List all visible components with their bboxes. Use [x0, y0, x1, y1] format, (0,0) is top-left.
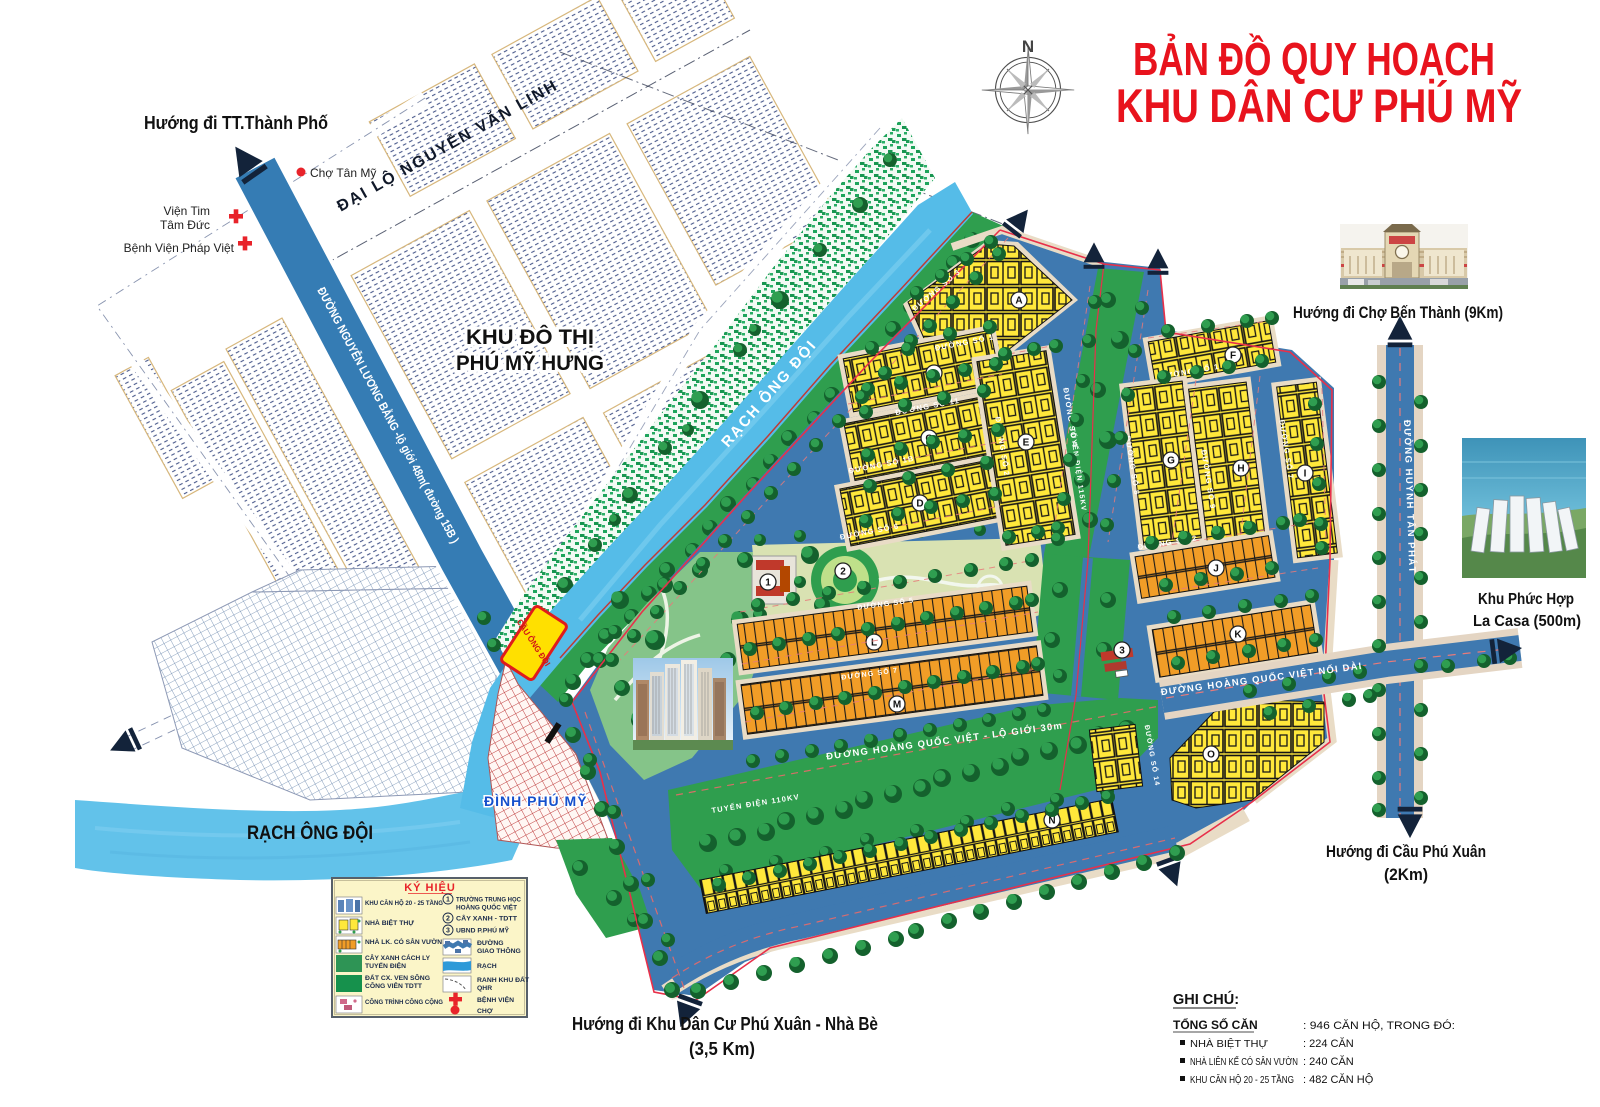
- svg-text:3: 3: [446, 927, 450, 934]
- svg-text:A: A: [1015, 296, 1022, 307]
- svg-text:ĐÌNH PHÚ MỸ: ĐÌNH PHÚ MỸ: [484, 792, 588, 809]
- svg-text:J: J: [1213, 564, 1219, 575]
- svg-text:D: D: [916, 499, 923, 510]
- svg-text:Bệnh Viện Pháp Việt: Bệnh Viện Pháp Việt: [124, 241, 235, 255]
- svg-text:NHÀ LIÊN KẾ CÓ SÂN VƯỜN: NHÀ LIÊN KẾ CÓ SÂN VƯỜN: [1190, 1055, 1298, 1068]
- svg-text:1: 1: [765, 578, 771, 589]
- svg-text:M: M: [893, 700, 901, 711]
- svg-text:QHR: QHR: [477, 985, 492, 992]
- svg-text:F: F: [1230, 351, 1236, 362]
- svg-text:KHU DÂN CƯ PHÚ MỸ: KHU DÂN CƯ PHÚ MỸ: [1116, 79, 1522, 132]
- svg-text:Hướng đi Cầu Phú Xuân: Hướng đi Cầu Phú Xuân: [1326, 842, 1486, 861]
- svg-text:Viện Tim: Viện Tim: [164, 204, 210, 218]
- svg-text:NHÀ BIỆT THỰ: NHÀ BIỆT THỰ: [1190, 1037, 1268, 1050]
- svg-text:Hướng đi Khu Dân Cư Phú Xuân -: Hướng đi Khu Dân Cư Phú Xuân - Nhà Bè: [572, 1014, 878, 1034]
- svg-text:RẠCH: RẠCH: [477, 963, 497, 970]
- svg-text:PHÚ MỸ HƯNG: PHÚ MỸ HƯNG: [456, 351, 604, 375]
- svg-text:1: 1: [446, 896, 450, 903]
- svg-text:KÝ HIỆU: KÝ HIỆU: [404, 881, 456, 894]
- svg-text:NHÀ LK. CÓ SÂN VƯỜN: NHÀ LK. CÓ SÂN VƯỜN: [365, 937, 442, 946]
- svg-text:E: E: [1023, 438, 1030, 449]
- svg-text:KHU ĐÔ THỊ: KHU ĐÔ THỊ: [466, 325, 594, 349]
- svg-text:UBND P.PHÚ MỸ: UBND P.PHÚ MỸ: [456, 925, 509, 934]
- svg-text:Chợ Tân Mỹ: Chợ Tân Mỹ: [310, 166, 376, 180]
- svg-text:GIAO THÔNG: GIAO THÔNG: [477, 946, 521, 955]
- svg-text:CHỢ: CHỢ: [477, 1008, 493, 1015]
- svg-text:NHÀ BIỆT THỰ: NHÀ BIỆT THỰ: [365, 918, 414, 927]
- svg-text:: 224 CĂN: : 224 CĂN: [1303, 1037, 1354, 1050]
- svg-text:TRƯỜNG TRUNG HỌC: TRƯỜNG TRUNG HỌC: [456, 894, 521, 903]
- svg-text:(2Km): (2Km): [1384, 865, 1428, 884]
- svg-text:G: G: [1167, 456, 1175, 467]
- svg-text:TỔNG SỐ CĂN: TỔNG SỐ CĂN: [1173, 1017, 1258, 1032]
- svg-text:L: L: [871, 638, 877, 649]
- svg-text:RẠCH ÔNG ĐỘI: RẠCH ÔNG ĐỘI: [247, 822, 373, 844]
- svg-text:2: 2: [446, 915, 450, 922]
- svg-text:BẢN ĐỒ QUY HOẠCH: BẢN ĐỒ QUY HOẠCH: [1133, 33, 1495, 85]
- svg-text:: 482 CĂN HỘ: : 482 CĂN HỘ: [1303, 1073, 1374, 1086]
- svg-text:Hướng đi Chợ Bến Thành (9Km): Hướng đi Chợ Bến Thành (9Km): [1293, 303, 1503, 322]
- svg-text:2: 2: [840, 567, 846, 578]
- svg-text:O: O: [1207, 750, 1215, 761]
- svg-text:(3,5 Km): (3,5 Km): [689, 1039, 755, 1059]
- svg-text:CÔNG TRÌNH CÔNG CỘNG: CÔNG TRÌNH CÔNG CỘNG: [365, 997, 443, 1006]
- svg-text:: 946 CĂN HỘ, TRONG ĐÓ:: : 946 CĂN HỘ, TRONG ĐÓ:: [1303, 1019, 1455, 1032]
- svg-text:Hướng đi TT.Thành Phố: Hướng đi TT.Thành Phố: [144, 113, 328, 133]
- svg-text:ĐƯỜNG: ĐƯỜNG: [477, 938, 504, 947]
- svg-text:Khu Phức Hợp: Khu Phức Hợp: [1478, 591, 1574, 608]
- svg-text:BỆNH VIỆN: BỆNH VIỆN: [477, 995, 514, 1004]
- svg-text:KHU CĂN HỘ 20 - 25 TẦNG: KHU CĂN HỘ 20 - 25 TẦNG: [1190, 1073, 1294, 1086]
- svg-text:CÂY XANH CÁCH LY: CÂY XANH CÁCH LY: [365, 953, 430, 962]
- svg-text:Tâm Đức: Tâm Đức: [160, 218, 210, 232]
- svg-text:K: K: [1234, 630, 1242, 641]
- svg-text:CÔNG VIÊN TDTT: CÔNG VIÊN TDTT: [365, 981, 423, 990]
- svg-text:CÂY XANH - TDTT: CÂY XANH - TDTT: [456, 913, 518, 922]
- svg-text:H: H: [1237, 464, 1244, 475]
- svg-text:3: 3: [1119, 646, 1125, 657]
- svg-text:I: I: [1304, 469, 1307, 480]
- svg-text:GHI CHÚ:: GHI CHÚ:: [1173, 990, 1239, 1008]
- svg-text:: 240 CĂN: : 240 CĂN: [1303, 1055, 1354, 1068]
- svg-text:N: N: [1048, 816, 1055, 827]
- svg-text:La Casa (500m): La Casa (500m): [1473, 613, 1581, 630]
- svg-text:N: N: [1022, 37, 1034, 56]
